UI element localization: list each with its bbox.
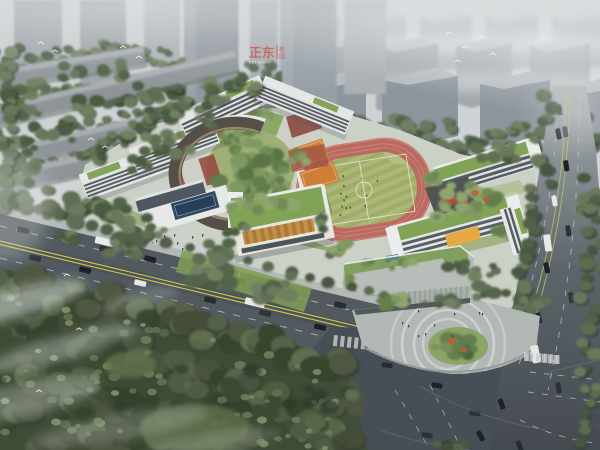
svg-text:正东: 正东 <box>249 45 275 60</box>
svg-text:EST VISION: EST VISION <box>249 61 271 65</box>
svg-text:园: 园 <box>279 54 285 61</box>
svg-text:校: 校 <box>279 46 285 54</box>
